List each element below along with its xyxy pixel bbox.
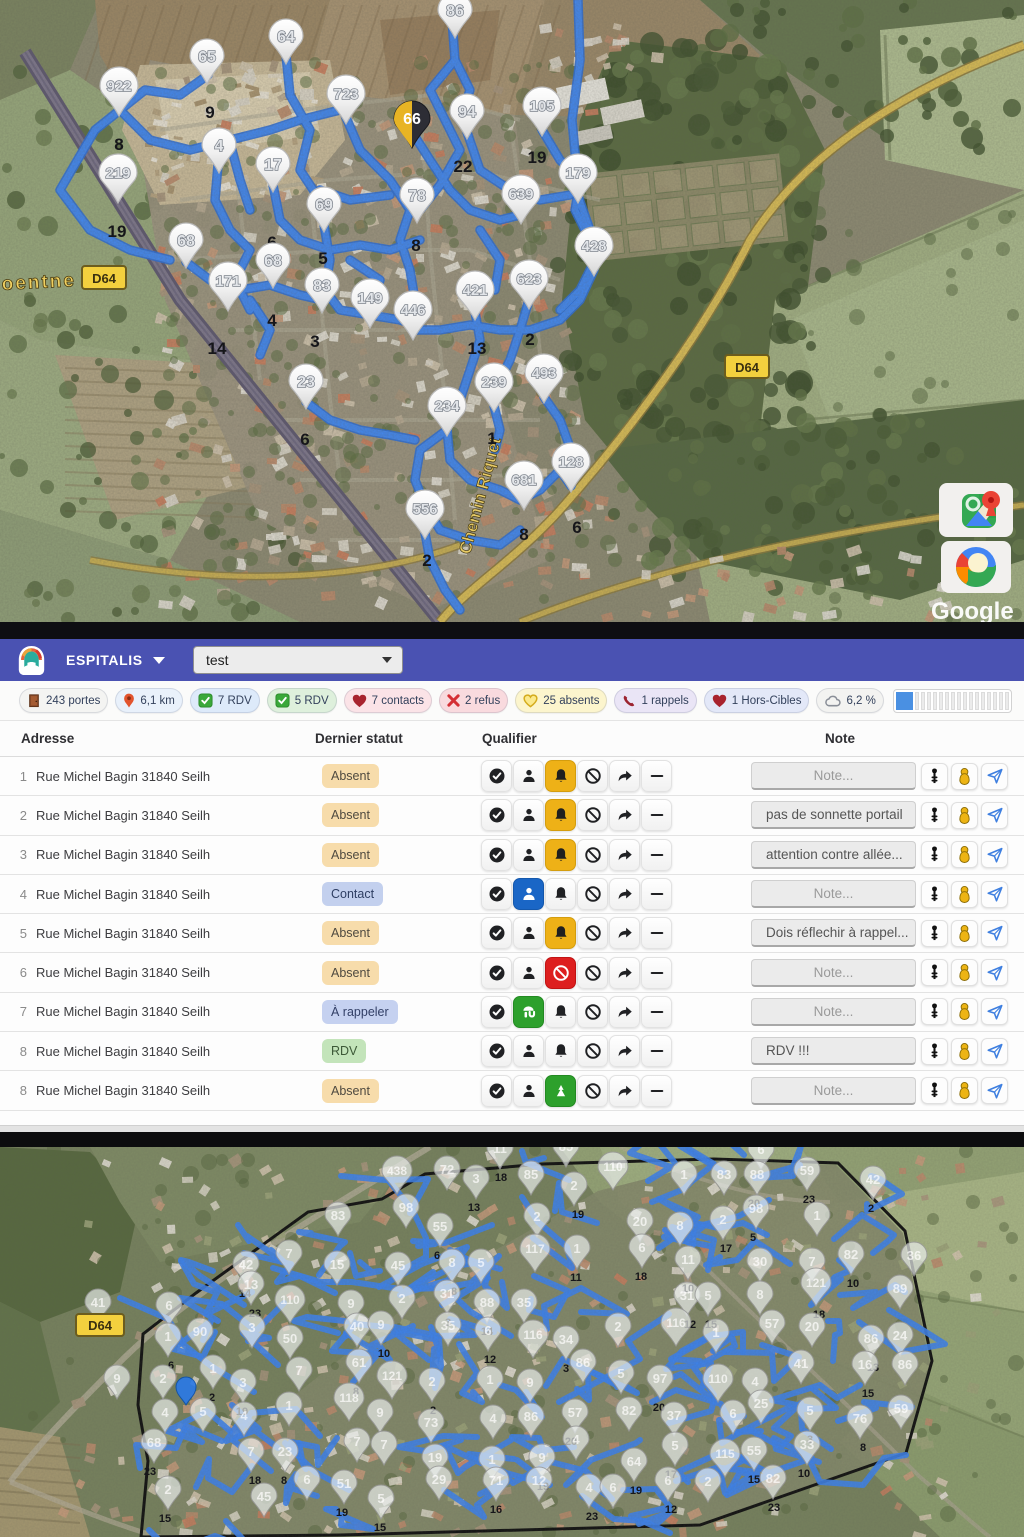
svg-text:98: 98 [749, 1201, 763, 1216]
svg-text:5: 5 [750, 1232, 756, 1244]
svg-text:7: 7 [353, 1434, 360, 1449]
svg-text:66: 66 [403, 111, 421, 128]
svg-text:19: 19 [428, 1450, 442, 1465]
svg-text:57: 57 [568, 1405, 582, 1420]
svg-text:171: 171 [215, 273, 240, 290]
svg-text:116: 116 [523, 1328, 543, 1342]
svg-text:36: 36 [907, 1248, 921, 1263]
svg-text:15: 15 [748, 1474, 760, 1486]
svg-text:3: 3 [472, 1171, 479, 1186]
svg-text:29: 29 [432, 1472, 446, 1487]
svg-text:623: 623 [516, 271, 541, 288]
svg-text:94: 94 [458, 104, 476, 121]
svg-text:9: 9 [205, 103, 214, 122]
svg-text:421: 421 [462, 282, 487, 299]
svg-text:86: 86 [524, 1409, 538, 1424]
svg-text:86: 86 [864, 1331, 878, 1346]
svg-text:4: 4 [489, 1411, 497, 1426]
svg-text:6: 6 [757, 1147, 764, 1157]
svg-text:Google: Google [931, 598, 1014, 622]
svg-text:98: 98 [399, 1200, 413, 1215]
svg-text:3: 3 [310, 332, 319, 351]
svg-text:85: 85 [559, 1147, 573, 1154]
svg-text:7: 7 [247, 1444, 254, 1459]
svg-text:88: 88 [750, 1167, 764, 1182]
svg-text:8: 8 [676, 1218, 683, 1233]
svg-text:35: 35 [517, 1295, 531, 1310]
svg-text:3: 3 [239, 1375, 246, 1390]
svg-text:2: 2 [570, 1178, 577, 1193]
svg-text:64: 64 [277, 29, 295, 46]
svg-text:15: 15 [159, 1513, 171, 1525]
svg-text:556: 556 [412, 501, 437, 518]
svg-text:428: 428 [581, 238, 606, 255]
svg-text:7: 7 [380, 1437, 387, 1452]
svg-text:6: 6 [664, 1473, 671, 1488]
svg-text:17: 17 [264, 157, 282, 174]
svg-text:D64: D64 [92, 271, 117, 286]
svg-text:68: 68 [264, 253, 282, 270]
svg-text:23: 23 [586, 1511, 598, 1523]
svg-text:55: 55 [433, 1219, 447, 1234]
svg-text:19: 19 [630, 1485, 642, 1497]
svg-text:82: 82 [622, 1403, 636, 1418]
svg-text:6: 6 [638, 1240, 645, 1255]
svg-text:9: 9 [376, 1405, 383, 1420]
svg-text:723: 723 [333, 86, 358, 103]
svg-text:13: 13 [468, 339, 487, 358]
svg-text:5: 5 [199, 1404, 206, 1419]
svg-text:110: 110 [280, 1293, 300, 1307]
svg-text:149: 149 [357, 290, 382, 307]
svg-text:438: 438 [387, 1164, 407, 1178]
svg-text:6: 6 [484, 1323, 491, 1338]
svg-text:2: 2 [398, 1291, 405, 1306]
svg-text:42: 42 [866, 1172, 880, 1187]
svg-text:45: 45 [257, 1489, 271, 1504]
svg-text:5: 5 [377, 1491, 384, 1506]
svg-text:57: 57 [765, 1316, 779, 1331]
svg-text:446: 446 [400, 302, 425, 319]
svg-text:31: 31 [680, 1288, 694, 1303]
svg-text:219: 219 [105, 165, 130, 182]
svg-text:4: 4 [585, 1480, 593, 1495]
svg-text:19: 19 [336, 1507, 348, 1519]
svg-text:25: 25 [754, 1396, 768, 1411]
svg-text:oentne: oentne [1, 270, 76, 295]
svg-text:5: 5 [704, 1288, 711, 1303]
svg-text:8: 8 [519, 525, 528, 544]
svg-text:42: 42 [239, 1257, 253, 1272]
svg-text:18: 18 [635, 1271, 647, 1283]
svg-text:88: 88 [480, 1295, 494, 1310]
svg-text:117: 117 [525, 1242, 545, 1256]
svg-text:30: 30 [753, 1254, 767, 1269]
svg-text:61: 61 [352, 1355, 366, 1370]
svg-text:639: 639 [508, 186, 533, 203]
svg-text:121: 121 [806, 1276, 826, 1290]
svg-text:5: 5 [617, 1366, 624, 1381]
svg-text:1: 1 [487, 429, 496, 448]
svg-text:2: 2 [428, 1374, 435, 1389]
svg-text:86: 86 [576, 1355, 590, 1370]
svg-text:2: 2 [868, 1203, 874, 1215]
svg-text:59: 59 [894, 1401, 908, 1416]
svg-text:97: 97 [653, 1371, 667, 1386]
svg-text:51: 51 [337, 1476, 351, 1491]
svg-text:D64: D64 [735, 360, 760, 375]
svg-text:1: 1 [486, 1372, 493, 1387]
svg-text:2: 2 [614, 1319, 621, 1334]
svg-text:6: 6 [165, 1298, 172, 1313]
svg-text:86: 86 [898, 1357, 912, 1372]
svg-text:4: 4 [751, 1374, 759, 1389]
svg-text:18: 18 [495, 1172, 507, 1184]
svg-text:493: 493 [531, 365, 556, 382]
svg-text:1: 1 [488, 1452, 495, 1467]
svg-text:59: 59 [800, 1163, 814, 1178]
svg-text:8: 8 [114, 135, 123, 154]
svg-text:1: 1 [813, 1208, 820, 1223]
svg-text:22: 22 [454, 157, 473, 176]
svg-text:31: 31 [440, 1286, 454, 1301]
svg-text:16: 16 [490, 1504, 502, 1516]
svg-text:90: 90 [193, 1324, 207, 1339]
svg-text:1: 1 [680, 1167, 687, 1182]
svg-text:8: 8 [860, 1442, 866, 1454]
svg-text:89: 89 [893, 1281, 907, 1296]
svg-text:110: 110 [708, 1372, 728, 1386]
svg-text:1: 1 [209, 1361, 216, 1376]
svg-text:1: 1 [573, 1241, 580, 1256]
svg-text:71: 71 [489, 1473, 503, 1488]
svg-text:116: 116 [666, 1316, 686, 1330]
svg-text:6: 6 [729, 1406, 736, 1421]
svg-text:83: 83 [717, 1167, 731, 1182]
svg-text:33: 33 [800, 1437, 814, 1452]
svg-text:1: 1 [712, 1325, 719, 1340]
svg-text:78: 78 [408, 188, 426, 205]
svg-text:2: 2 [164, 1482, 171, 1497]
svg-text:68: 68 [147, 1435, 161, 1450]
svg-text:40: 40 [350, 1319, 364, 1334]
svg-text:681: 681 [511, 472, 536, 489]
svg-text:8: 8 [448, 1255, 455, 1270]
svg-text:6: 6 [572, 518, 581, 537]
svg-text:82: 82 [766, 1471, 780, 1486]
svg-text:6: 6 [609, 1480, 616, 1495]
svg-text:2: 2 [533, 1209, 540, 1224]
svg-text:34: 34 [559, 1332, 574, 1347]
svg-text:85: 85 [524, 1167, 538, 1182]
svg-text:115: 115 [715, 1447, 735, 1461]
svg-text:239: 239 [481, 374, 506, 391]
svg-text:50: 50 [283, 1331, 297, 1346]
svg-text:45: 45 [391, 1258, 405, 1273]
svg-text:20: 20 [805, 1319, 819, 1334]
svg-text:5: 5 [671, 1438, 678, 1453]
svg-text:24: 24 [893, 1328, 908, 1343]
svg-text:9: 9 [347, 1296, 354, 1311]
svg-text:9: 9 [526, 1375, 533, 1390]
svg-text:23: 23 [297, 374, 315, 391]
svg-text:37: 37 [667, 1408, 681, 1423]
svg-text:1: 1 [285, 1398, 292, 1413]
svg-text:17: 17 [720, 1243, 732, 1255]
svg-text:86: 86 [446, 3, 464, 20]
svg-text:2: 2 [525, 330, 534, 349]
svg-text:11: 11 [493, 1147, 507, 1156]
svg-text:72: 72 [440, 1162, 454, 1177]
svg-text:64: 64 [627, 1454, 642, 1469]
svg-text:121: 121 [382, 1369, 402, 1383]
svg-text:5: 5 [806, 1403, 813, 1418]
svg-text:128: 128 [558, 454, 583, 471]
svg-text:7: 7 [295, 1363, 302, 1378]
svg-text:1: 1 [164, 1329, 171, 1344]
svg-text:5: 5 [477, 1255, 484, 1270]
svg-text:9: 9 [377, 1317, 384, 1332]
svg-text:234: 234 [434, 398, 460, 415]
svg-text:2: 2 [704, 1474, 711, 1489]
svg-text:3: 3 [563, 1363, 569, 1375]
svg-text:13: 13 [244, 1277, 258, 1292]
svg-text:105: 105 [529, 98, 554, 115]
svg-text:4: 4 [572, 1432, 580, 1447]
svg-text:23: 23 [278, 1444, 292, 1459]
svg-text:35: 35 [441, 1318, 455, 1333]
svg-text:19: 19 [108, 222, 127, 241]
svg-text:12: 12 [532, 1473, 546, 1488]
svg-text:14: 14 [208, 339, 227, 358]
svg-text:2: 2 [719, 1212, 726, 1227]
svg-text:110: 110 [603, 1160, 623, 1174]
svg-text:83: 83 [331, 1208, 345, 1223]
svg-text:4: 4 [267, 311, 277, 330]
svg-text:23: 23 [144, 1466, 156, 1478]
svg-text:4: 4 [215, 138, 224, 155]
svg-text:82: 82 [844, 1247, 858, 1262]
svg-text:69: 69 [315, 197, 333, 214]
svg-text:118: 118 [339, 1391, 359, 1405]
svg-text:15: 15 [374, 1522, 386, 1534]
svg-text:6: 6 [300, 430, 309, 449]
svg-text:179: 179 [565, 165, 590, 182]
svg-text:3: 3 [248, 1320, 255, 1335]
svg-text:41: 41 [91, 1295, 105, 1310]
svg-text:10: 10 [847, 1278, 859, 1290]
svg-text:12: 12 [665, 1504, 677, 1516]
svg-text:65: 65 [198, 49, 216, 66]
svg-text:8: 8 [756, 1287, 763, 1302]
svg-text:10: 10 [798, 1468, 810, 1480]
svg-text:4: 4 [161, 1405, 169, 1420]
svg-text:2: 2 [159, 1371, 166, 1386]
svg-text:68: 68 [177, 233, 195, 250]
svg-text:19: 19 [528, 148, 547, 167]
svg-text:11: 11 [681, 1252, 695, 1267]
svg-text:7: 7 [285, 1246, 292, 1261]
svg-text:9: 9 [538, 1450, 545, 1465]
svg-text:20: 20 [633, 1214, 647, 1229]
svg-text:23: 23 [768, 1502, 780, 1514]
svg-text:15: 15 [330, 1257, 344, 1272]
svg-text:55: 55 [747, 1443, 761, 1458]
svg-text:73: 73 [424, 1415, 438, 1430]
svg-text:6: 6 [303, 1472, 310, 1487]
svg-text:11: 11 [570, 1272, 582, 1284]
svg-text:41: 41 [794, 1356, 808, 1371]
svg-text:8: 8 [281, 1475, 287, 1487]
svg-text:D64: D64 [88, 1318, 113, 1333]
svg-text:922: 922 [106, 78, 131, 95]
svg-text:12: 12 [484, 1354, 496, 1366]
svg-text:4: 4 [240, 1408, 248, 1423]
svg-text:13: 13 [468, 1202, 480, 1214]
svg-text:8: 8 [411, 236, 420, 255]
svg-text:10: 10 [378, 1348, 390, 1360]
svg-text:15: 15 [862, 1388, 874, 1400]
svg-text:16: 16 [858, 1357, 872, 1372]
svg-text:2: 2 [422, 551, 431, 570]
svg-text:83: 83 [313, 278, 331, 295]
svg-text:9: 9 [113, 1371, 120, 1386]
svg-text:76: 76 [853, 1411, 867, 1426]
svg-text:7: 7 [808, 1254, 815, 1269]
svg-text:19: 19 [572, 1209, 584, 1221]
svg-text:5: 5 [318, 249, 327, 268]
